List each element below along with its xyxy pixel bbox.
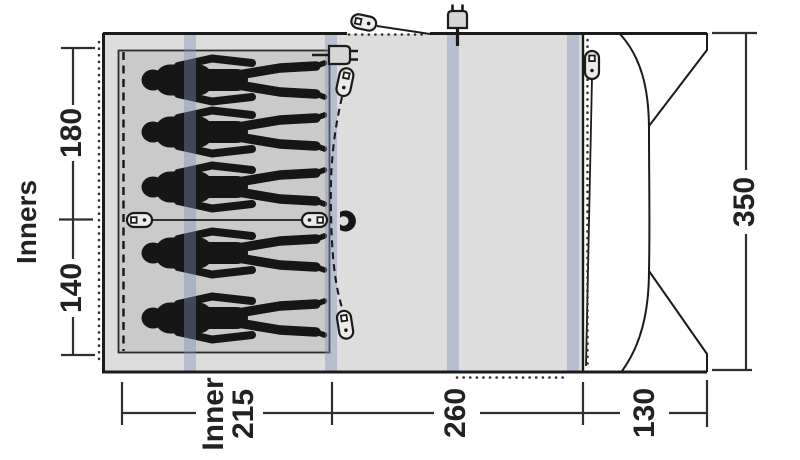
- dim-label-180: 180: [57, 108, 87, 158]
- floorplan-canvas: [0, 0, 800, 460]
- tent-floorplan-diagram: Inners 180 140 350 Inner 215 260 130: [0, 0, 800, 460]
- divider-toggle-left-icon: [127, 213, 152, 227]
- porch-door-curve: [620, 34, 649, 371]
- dim-label-260: 260: [441, 388, 471, 438]
- guyline: [377, 26, 430, 34]
- pole-stripe: [447, 34, 459, 371]
- dim-label-350: 350: [730, 177, 760, 227]
- dim-label-130: 130: [630, 388, 660, 438]
- dim-label-140: 140: [57, 263, 87, 313]
- dim-label-inner-word: Inner: [199, 377, 229, 450]
- inners-label: Inners: [12, 180, 42, 264]
- porch-top-corner: [649, 33, 707, 126]
- pole-stripe: [567, 34, 579, 371]
- porch-door-toggle-icon: [585, 51, 599, 79]
- divider-toggle-right-icon: [302, 213, 327, 227]
- top-guyline-toggle-icon: [350, 13, 377, 32]
- pole-stripe: [325, 34, 337, 371]
- dim-label-inner-215: Inner 215: [199, 377, 259, 450]
- porch-bottom-corner: [649, 271, 707, 372]
- dim-label-inner-value: 215: [229, 377, 259, 450]
- pole-stripe: [184, 34, 196, 371]
